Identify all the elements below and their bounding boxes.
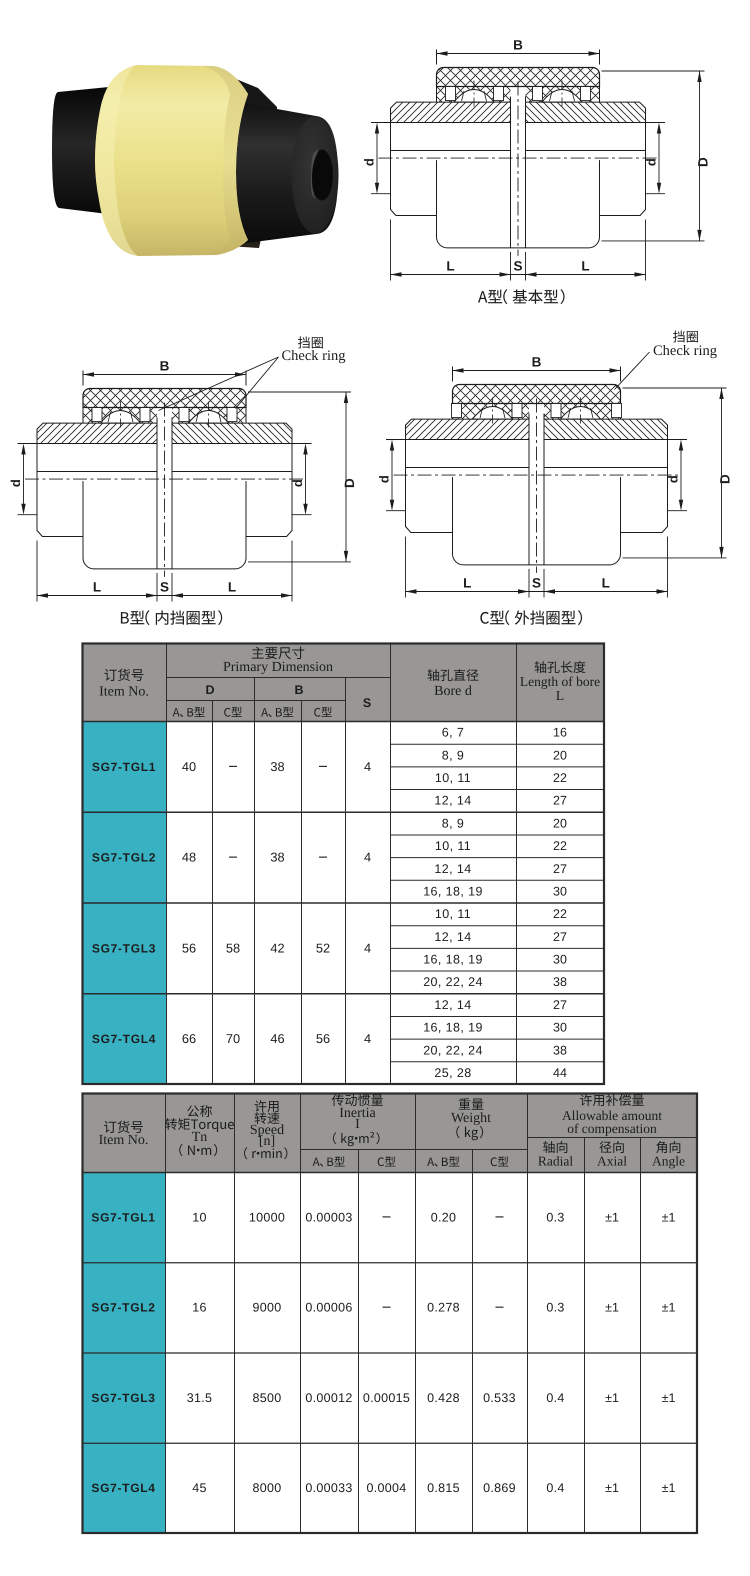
svg-text:Tn: Tn [192, 1130, 208, 1145]
svg-text:20, 22, 24: 20, 22, 24 [423, 975, 483, 989]
svg-text:0.0004: 0.0004 [366, 1481, 406, 1495]
svg-text:58: 58 [226, 940, 240, 955]
svg-text:0.00015: 0.00015 [363, 1391, 410, 1405]
svg-text:±1: ±1 [605, 1210, 619, 1224]
svg-text:0.00003: 0.00003 [305, 1210, 352, 1224]
svg-text:0.869: 0.869 [483, 1481, 516, 1495]
svg-text:0.00006: 0.00006 [305, 1301, 352, 1315]
svg-text:9000: 9000 [252, 1301, 281, 1315]
svg-text:0.00012: 0.00012 [305, 1391, 352, 1405]
svg-text:0.815: 0.815 [427, 1481, 460, 1495]
svg-text:10, 11: 10, 11 [435, 771, 471, 785]
svg-text:D: D [718, 474, 733, 484]
svg-text:d: d [644, 158, 659, 166]
svg-text:12, 14: 12, 14 [434, 930, 471, 944]
svg-text:SG7-TGL2: SG7-TGL2 [92, 851, 156, 865]
svg-text:Axial: Axial [597, 1154, 627, 1169]
svg-text:48: 48 [182, 850, 196, 865]
svg-text:±1: ±1 [605, 1391, 619, 1405]
svg-text:0.533: 0.533 [483, 1391, 516, 1405]
svg-text:30: 30 [553, 953, 567, 967]
svg-text:d: d [377, 475, 392, 483]
svg-text:D: D [342, 478, 357, 488]
svg-text:42: 42 [270, 940, 284, 955]
svg-text:20: 20 [553, 816, 567, 830]
svg-text:±1: ±1 [605, 1301, 619, 1315]
svg-text:38: 38 [270, 850, 284, 865]
svg-text:10, 11: 10, 11 [435, 907, 471, 921]
svg-text:Check ring: Check ring [653, 343, 717, 359]
svg-text:16: 16 [553, 726, 567, 740]
svg-text:31.5: 31.5 [187, 1391, 213, 1405]
svg-text:25, 28: 25, 28 [434, 1066, 471, 1080]
svg-text:SG7-TGL1: SG7-TGL1 [92, 760, 156, 774]
svg-text:Bore d: Bore d [434, 684, 472, 699]
svg-text:8500: 8500 [252, 1391, 281, 1405]
svg-text:6, 7: 6, 7 [442, 726, 464, 740]
svg-text:56: 56 [316, 1031, 330, 1046]
svg-text:38: 38 [553, 975, 567, 989]
svg-text:66: 66 [182, 1031, 196, 1046]
svg-text:0.428: 0.428 [427, 1391, 460, 1405]
svg-text:B: B [513, 38, 523, 53]
svg-text:d: d [8, 479, 23, 487]
svg-text:10: 10 [192, 1210, 207, 1224]
svg-text:0.20: 0.20 [431, 1210, 457, 1224]
svg-text:±1: ±1 [662, 1301, 676, 1315]
svg-text:4: 4 [364, 850, 371, 865]
svg-text:30: 30 [553, 884, 567, 898]
svg-text:D: D [696, 157, 711, 167]
svg-text:10, 11: 10, 11 [435, 839, 471, 853]
svg-text:56: 56 [182, 940, 196, 955]
svg-text:16, 18, 19: 16, 18, 19 [423, 953, 483, 967]
svg-text:I: I [355, 1117, 360, 1132]
svg-text:20, 22, 24: 20, 22, 24 [423, 1043, 483, 1057]
svg-text:46: 46 [270, 1031, 284, 1046]
svg-text:Primary Dimension: Primary Dimension [223, 660, 333, 675]
svg-text:S: S [363, 696, 371, 710]
svg-text:8000: 8000 [252, 1481, 281, 1495]
svg-text:0.4: 0.4 [546, 1391, 564, 1405]
svg-text:38: 38 [553, 1043, 567, 1057]
svg-text:±1: ±1 [605, 1481, 619, 1495]
svg-text:±1: ±1 [662, 1391, 676, 1405]
svg-text:0.4: 0.4 [546, 1481, 564, 1495]
svg-text:L: L [602, 576, 610, 591]
svg-text:D: D [205, 683, 214, 697]
svg-text:d: d [666, 475, 681, 483]
svg-text:S: S [513, 259, 522, 274]
svg-text:d: d [290, 479, 305, 487]
svg-text:52: 52 [316, 940, 330, 955]
svg-text:0.3: 0.3 [546, 1210, 564, 1224]
svg-text:SG7-TGL2: SG7-TGL2 [91, 1301, 155, 1315]
svg-text:4: 4 [364, 759, 371, 774]
svg-text:8, 9: 8, 9 [442, 748, 464, 762]
svg-text:22: 22 [553, 907, 567, 921]
svg-text:SG7-TGL3: SG7-TGL3 [92, 941, 156, 955]
svg-text:±1: ±1 [662, 1481, 676, 1495]
svg-text:70: 70 [226, 1031, 240, 1046]
svg-text:SG7-TGL1: SG7-TGL1 [91, 1210, 155, 1224]
svg-text:27: 27 [553, 998, 567, 1012]
svg-text:16: 16 [192, 1301, 207, 1315]
svg-text:8, 9: 8, 9 [442, 816, 464, 830]
svg-text:27: 27 [553, 930, 567, 944]
svg-text:4: 4 [364, 1031, 371, 1046]
svg-text:Length of bore: Length of bore [520, 674, 600, 689]
svg-text:Item No.: Item No. [99, 685, 149, 700]
svg-text:27: 27 [553, 862, 567, 876]
svg-text:d: d [362, 158, 377, 166]
svg-text:SG7-TGL4: SG7-TGL4 [91, 1481, 155, 1495]
svg-text:40: 40 [182, 759, 196, 774]
svg-text:22: 22 [553, 771, 567, 785]
svg-text:SG7-TGL4: SG7-TGL4 [92, 1032, 156, 1046]
svg-text:L: L [556, 688, 564, 703]
svg-text:Item No.: Item No. [99, 1133, 149, 1148]
svg-text:B: B [532, 355, 542, 370]
svg-text:45: 45 [192, 1481, 207, 1495]
svg-text:12, 14: 12, 14 [434, 794, 471, 808]
svg-text:S: S [160, 580, 169, 595]
svg-text:38: 38 [270, 759, 284, 774]
svg-text:10000: 10000 [249, 1210, 285, 1224]
svg-text:44: 44 [553, 1066, 567, 1080]
svg-text:L: L [93, 580, 101, 595]
svg-text:16, 18, 19: 16, 18, 19 [423, 884, 483, 898]
svg-text:22: 22 [553, 839, 567, 853]
svg-text:4: 4 [364, 940, 371, 955]
svg-text:±1: ±1 [662, 1210, 676, 1224]
svg-text:[n]: [n] [259, 1134, 275, 1149]
svg-text:0.00033: 0.00033 [305, 1481, 352, 1495]
svg-text:16, 18, 19: 16, 18, 19 [423, 1021, 483, 1035]
svg-text:30: 30 [553, 1021, 567, 1035]
svg-text:Check ring: Check ring [282, 348, 346, 364]
svg-text:B: B [294, 683, 303, 697]
svg-text:SG7-TGL3: SG7-TGL3 [91, 1391, 155, 1405]
svg-text:L: L [228, 580, 236, 595]
svg-text:L: L [446, 259, 454, 274]
svg-text:Angle: Angle [652, 1154, 685, 1169]
svg-text:Weight: Weight [451, 1111, 491, 1126]
svg-text:B: B [160, 359, 170, 374]
svg-text:0.3: 0.3 [546, 1301, 564, 1315]
svg-text:of compensation: of compensation [567, 1121, 657, 1136]
svg-text:12, 14: 12, 14 [434, 862, 471, 876]
svg-text:L: L [581, 259, 589, 274]
svg-text:Radial: Radial [538, 1154, 573, 1169]
svg-text:S: S [532, 576, 541, 591]
svg-text:12, 14: 12, 14 [434, 998, 471, 1012]
svg-text:L: L [463, 576, 471, 591]
svg-text:27: 27 [553, 794, 567, 808]
svg-text:0.278: 0.278 [427, 1301, 460, 1315]
svg-text:20: 20 [553, 748, 567, 762]
